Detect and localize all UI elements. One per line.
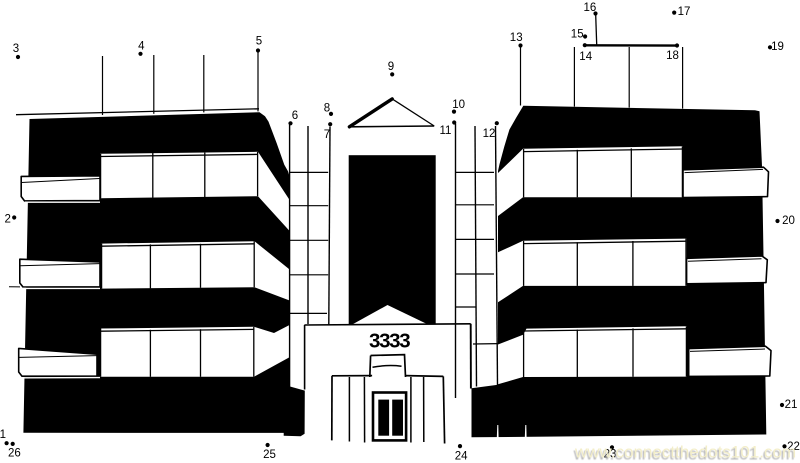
svg-text:18: 18 (666, 50, 679, 62)
svg-text:8: 8 (324, 103, 330, 115)
svg-text:14: 14 (579, 51, 592, 63)
svg-text:1: 1 (0, 429, 6, 441)
svg-text:10: 10 (452, 99, 465, 111)
svg-text:3: 3 (13, 43, 19, 55)
svg-text:25: 25 (263, 449, 276, 461)
svg-text:13: 13 (510, 32, 523, 44)
svg-text:24: 24 (455, 451, 468, 463)
svg-text:19: 19 (771, 41, 784, 53)
svg-text:9: 9 (388, 61, 394, 73)
svg-text:11: 11 (440, 125, 452, 137)
svg-text:21: 21 (785, 399, 798, 411)
svg-text:17: 17 (678, 6, 691, 18)
svg-text:www.connectthedots101.com: www.connectthedots101.com (574, 443, 796, 462)
svg-text:2: 2 (4, 214, 10, 226)
svg-text:16: 16 (584, 2, 597, 14)
svg-text:12: 12 (483, 128, 496, 140)
svg-text:6: 6 (292, 110, 298, 122)
svg-text:3333: 3333 (369, 329, 410, 352)
svg-text:20: 20 (782, 215, 795, 227)
svg-text:15: 15 (571, 28, 584, 40)
svg-text:7: 7 (324, 129, 330, 141)
svg-text:4: 4 (138, 40, 145, 52)
svg-text:5: 5 (256, 35, 262, 47)
svg-text:26: 26 (8, 448, 21, 460)
